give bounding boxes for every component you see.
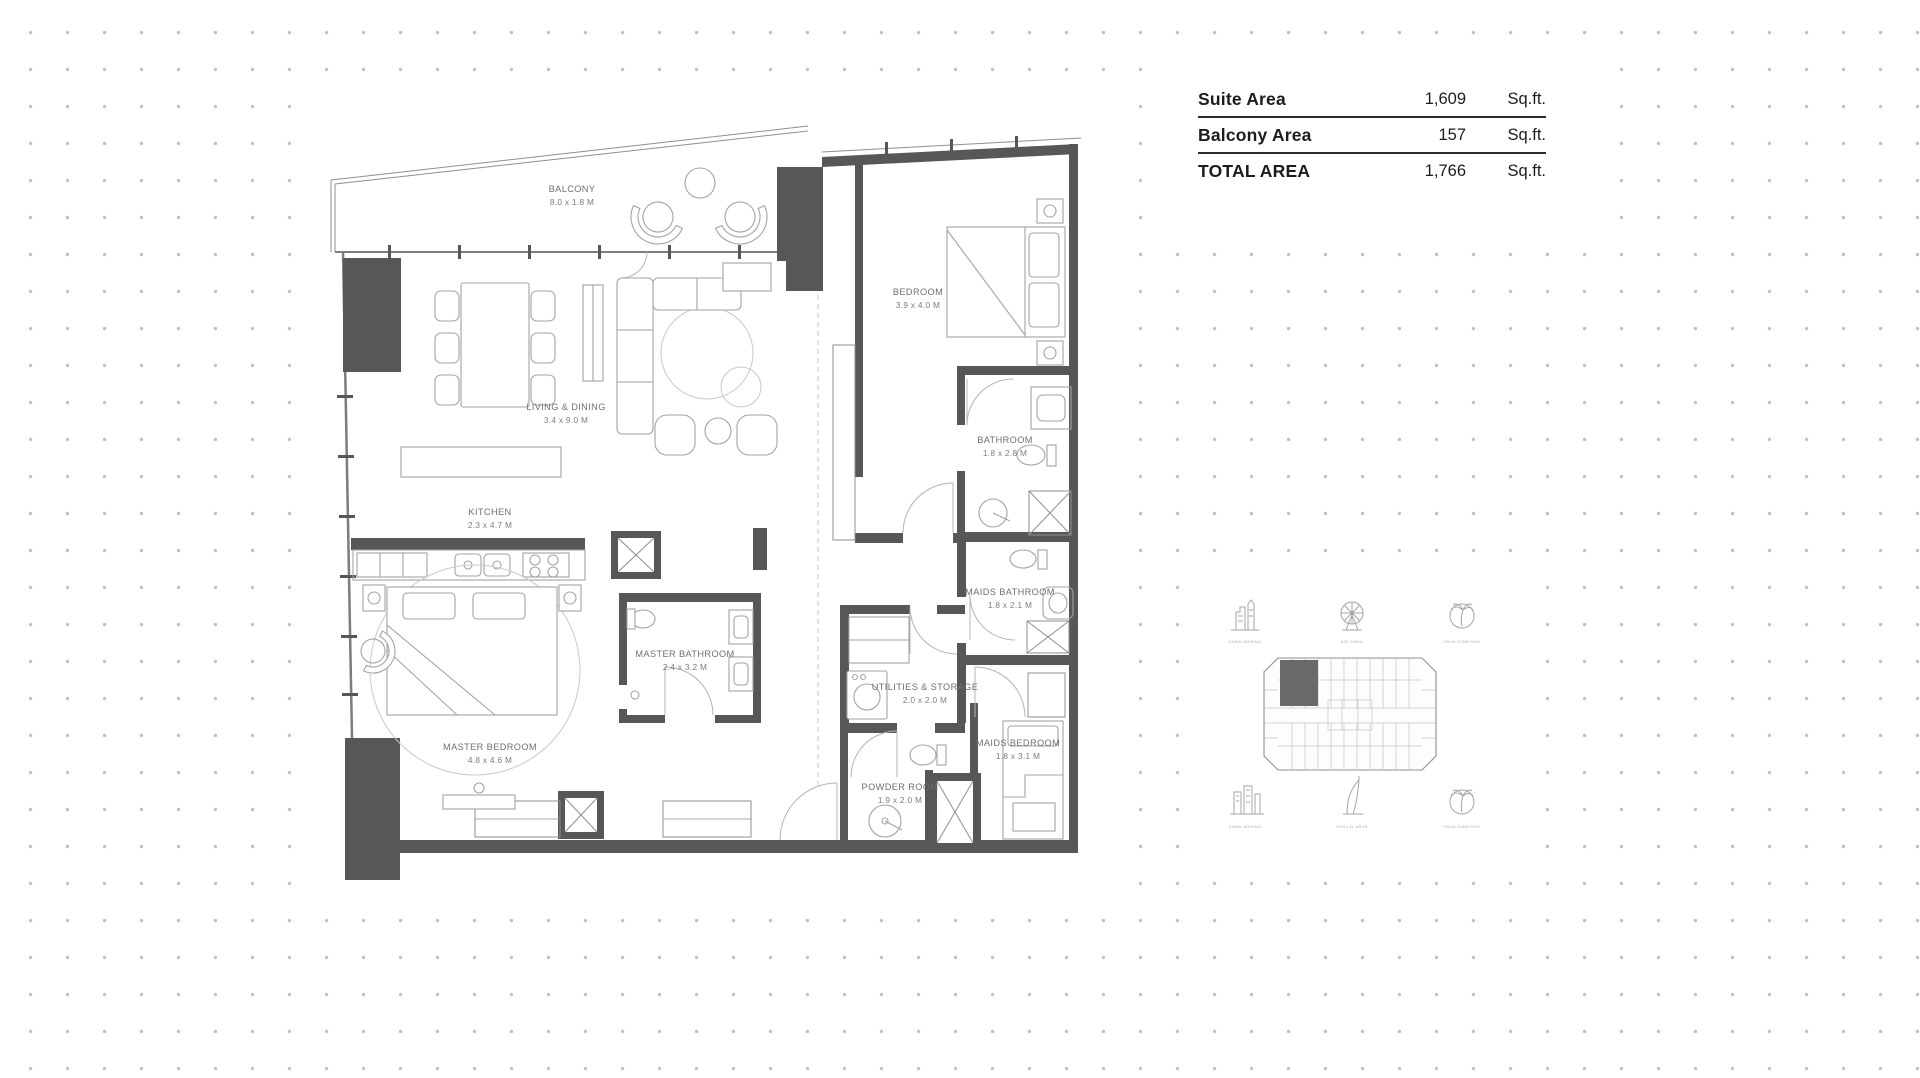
- room-label-maids-bedroom: MAIDS BEDROOM: [976, 738, 1060, 748]
- tower-floor-plate: [1264, 658, 1436, 770]
- suite-area-value: 1,609: [1384, 90, 1466, 109]
- total-area-value: 1,766: [1384, 162, 1466, 181]
- balcony-area-unit: Sq.ft.: [1466, 126, 1546, 145]
- balcony-area-label: Balcony Area: [1198, 125, 1384, 146]
- living-furniture: [583, 263, 777, 455]
- room-dims-bathroom: 1.8 x 2.8 M: [983, 448, 1027, 458]
- brochure-page: { "area_table": { "rows": [ {"label": "S…: [0, 0, 1920, 1078]
- room-label-bedroom: BEDROOM: [893, 287, 943, 297]
- landmark-label: PALM JUMEIRAH: [1444, 639, 1480, 644]
- area-row-total: TOTAL AREA 1,766 Sq.ft.: [1198, 154, 1546, 188]
- room-dims-master-bathroom: 2.4 x 3.2 M: [663, 662, 707, 672]
- room-label-balcony: BALCONY: [549, 184, 596, 194]
- landmark-label: PALM JUMEIRAH: [1444, 824, 1480, 829]
- balcony-area-value: 157: [1384, 126, 1466, 145]
- ferris-wheel-icon: [1341, 602, 1363, 630]
- room-dims-utilities: 2.0 x 2.0 M: [903, 695, 947, 705]
- room-label-utilities: UTILITIES & STORAGE: [872, 682, 978, 692]
- area-row-suite: Suite Area 1,609 Sq.ft.: [1198, 82, 1546, 118]
- room-label-master-bathroom: MASTER BATHROOM: [635, 649, 734, 659]
- highlighted-unit: [1280, 660, 1318, 706]
- palm-tree-icon: [1450, 790, 1474, 814]
- room-label-maids-bathroom: MAIDS BATHROOM: [965, 587, 1055, 597]
- utilities-fixtures: [847, 617, 909, 719]
- landmark-label: BURJ AL ARAB: [1336, 824, 1367, 829]
- room-dims-maids-bedroom: 1.8 x 3.1 M: [996, 751, 1040, 761]
- landmark-label: AIN DUBAI: [1341, 639, 1364, 644]
- area-table: Suite Area 1,609 Sq.ft. Balcony Area 157…: [1198, 82, 1546, 188]
- room-dims-master-bedroom: 4.8 x 4.6 M: [468, 755, 512, 765]
- bathroom-fixtures: [979, 387, 1071, 535]
- room-dims-bedroom: 3.9 x 4.0 M: [896, 300, 940, 310]
- room-dims-living: 3.4 x 9.0 M: [544, 415, 588, 425]
- city-skyline-icon: [1231, 600, 1259, 630]
- room-dims-powder-room: 1.9 x 2.0 M: [878, 795, 922, 805]
- palm-tree-icon: [1450, 604, 1474, 628]
- burj-al-arab-icon: [1343, 776, 1363, 814]
- room-label-master-bedroom: MASTER BEDROOM: [443, 742, 537, 752]
- room-label-living: LIVING & DINING: [526, 402, 606, 412]
- room-label-powder-room: POWDER ROOM: [862, 782, 939, 792]
- total-area-unit: Sq.ft.: [1466, 162, 1546, 181]
- key-plan: DUBAI MARINA AIN DUBAI PALM JUMEIRAH DUB…: [1200, 580, 1520, 860]
- room-dims-maids-bathroom: 1.8 x 2.1 M: [988, 600, 1032, 610]
- room-label-kitchen: KITCHEN: [468, 507, 511, 517]
- room-label-bathroom: BATHROOM: [977, 435, 1033, 445]
- room-dims-balcony: 8.0 x 1.8 M: [550, 197, 594, 207]
- balcony-furniture: [622, 168, 776, 253]
- room-dims-kitchen: 2.3 x 4.7 M: [468, 520, 512, 530]
- landmark-label: DUBAI MARINA: [1229, 824, 1262, 829]
- landmark-label: DUBAI MARINA: [1229, 639, 1262, 644]
- floor-plan: BALCONY 8.0 x 1.8 M LIVING & DINING 3.4 …: [325, 95, 1085, 885]
- area-row-balcony: Balcony Area 157 Sq.ft.: [1198, 118, 1546, 154]
- suite-area-unit: Sq.ft.: [1466, 90, 1546, 109]
- towers-icon: [1230, 786, 1264, 814]
- dining-set: [435, 283, 555, 407]
- bedroom-furniture: [947, 199, 1065, 365]
- suite-area-label: Suite Area: [1198, 89, 1384, 110]
- total-area-label: TOTAL AREA: [1198, 161, 1384, 182]
